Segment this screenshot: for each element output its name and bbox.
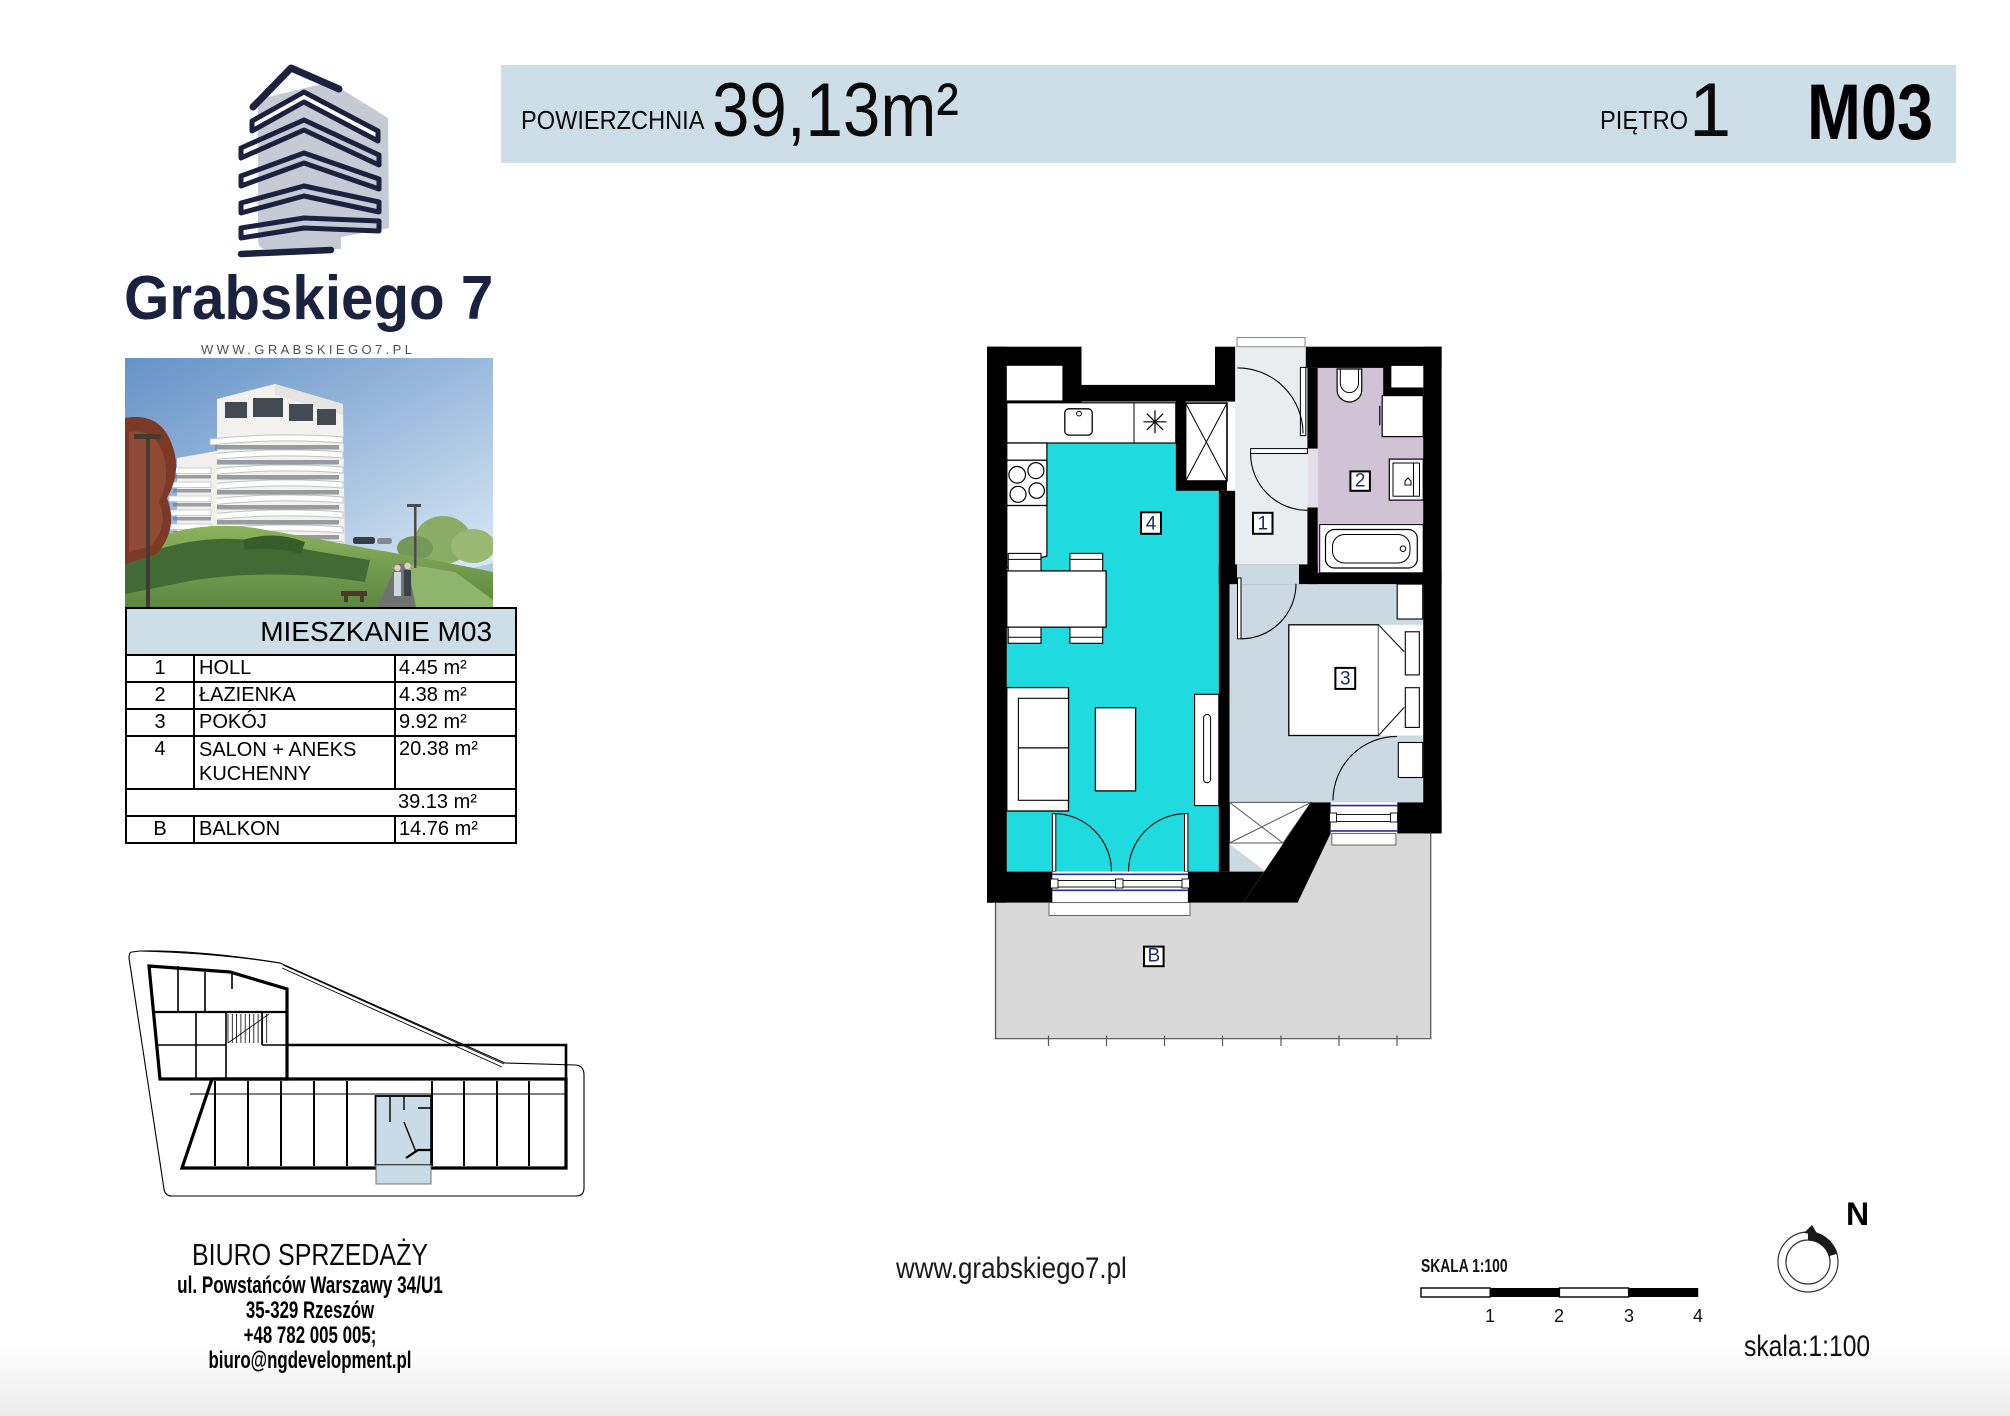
svg-text:3: 3 (1624, 1306, 1634, 1326)
svg-text:2: 2 (1554, 1306, 1564, 1326)
svg-text:N: N (1846, 1196, 1869, 1232)
svg-text:4: 4 (1693, 1306, 1703, 1326)
svg-text:1: 1 (1485, 1306, 1495, 1326)
